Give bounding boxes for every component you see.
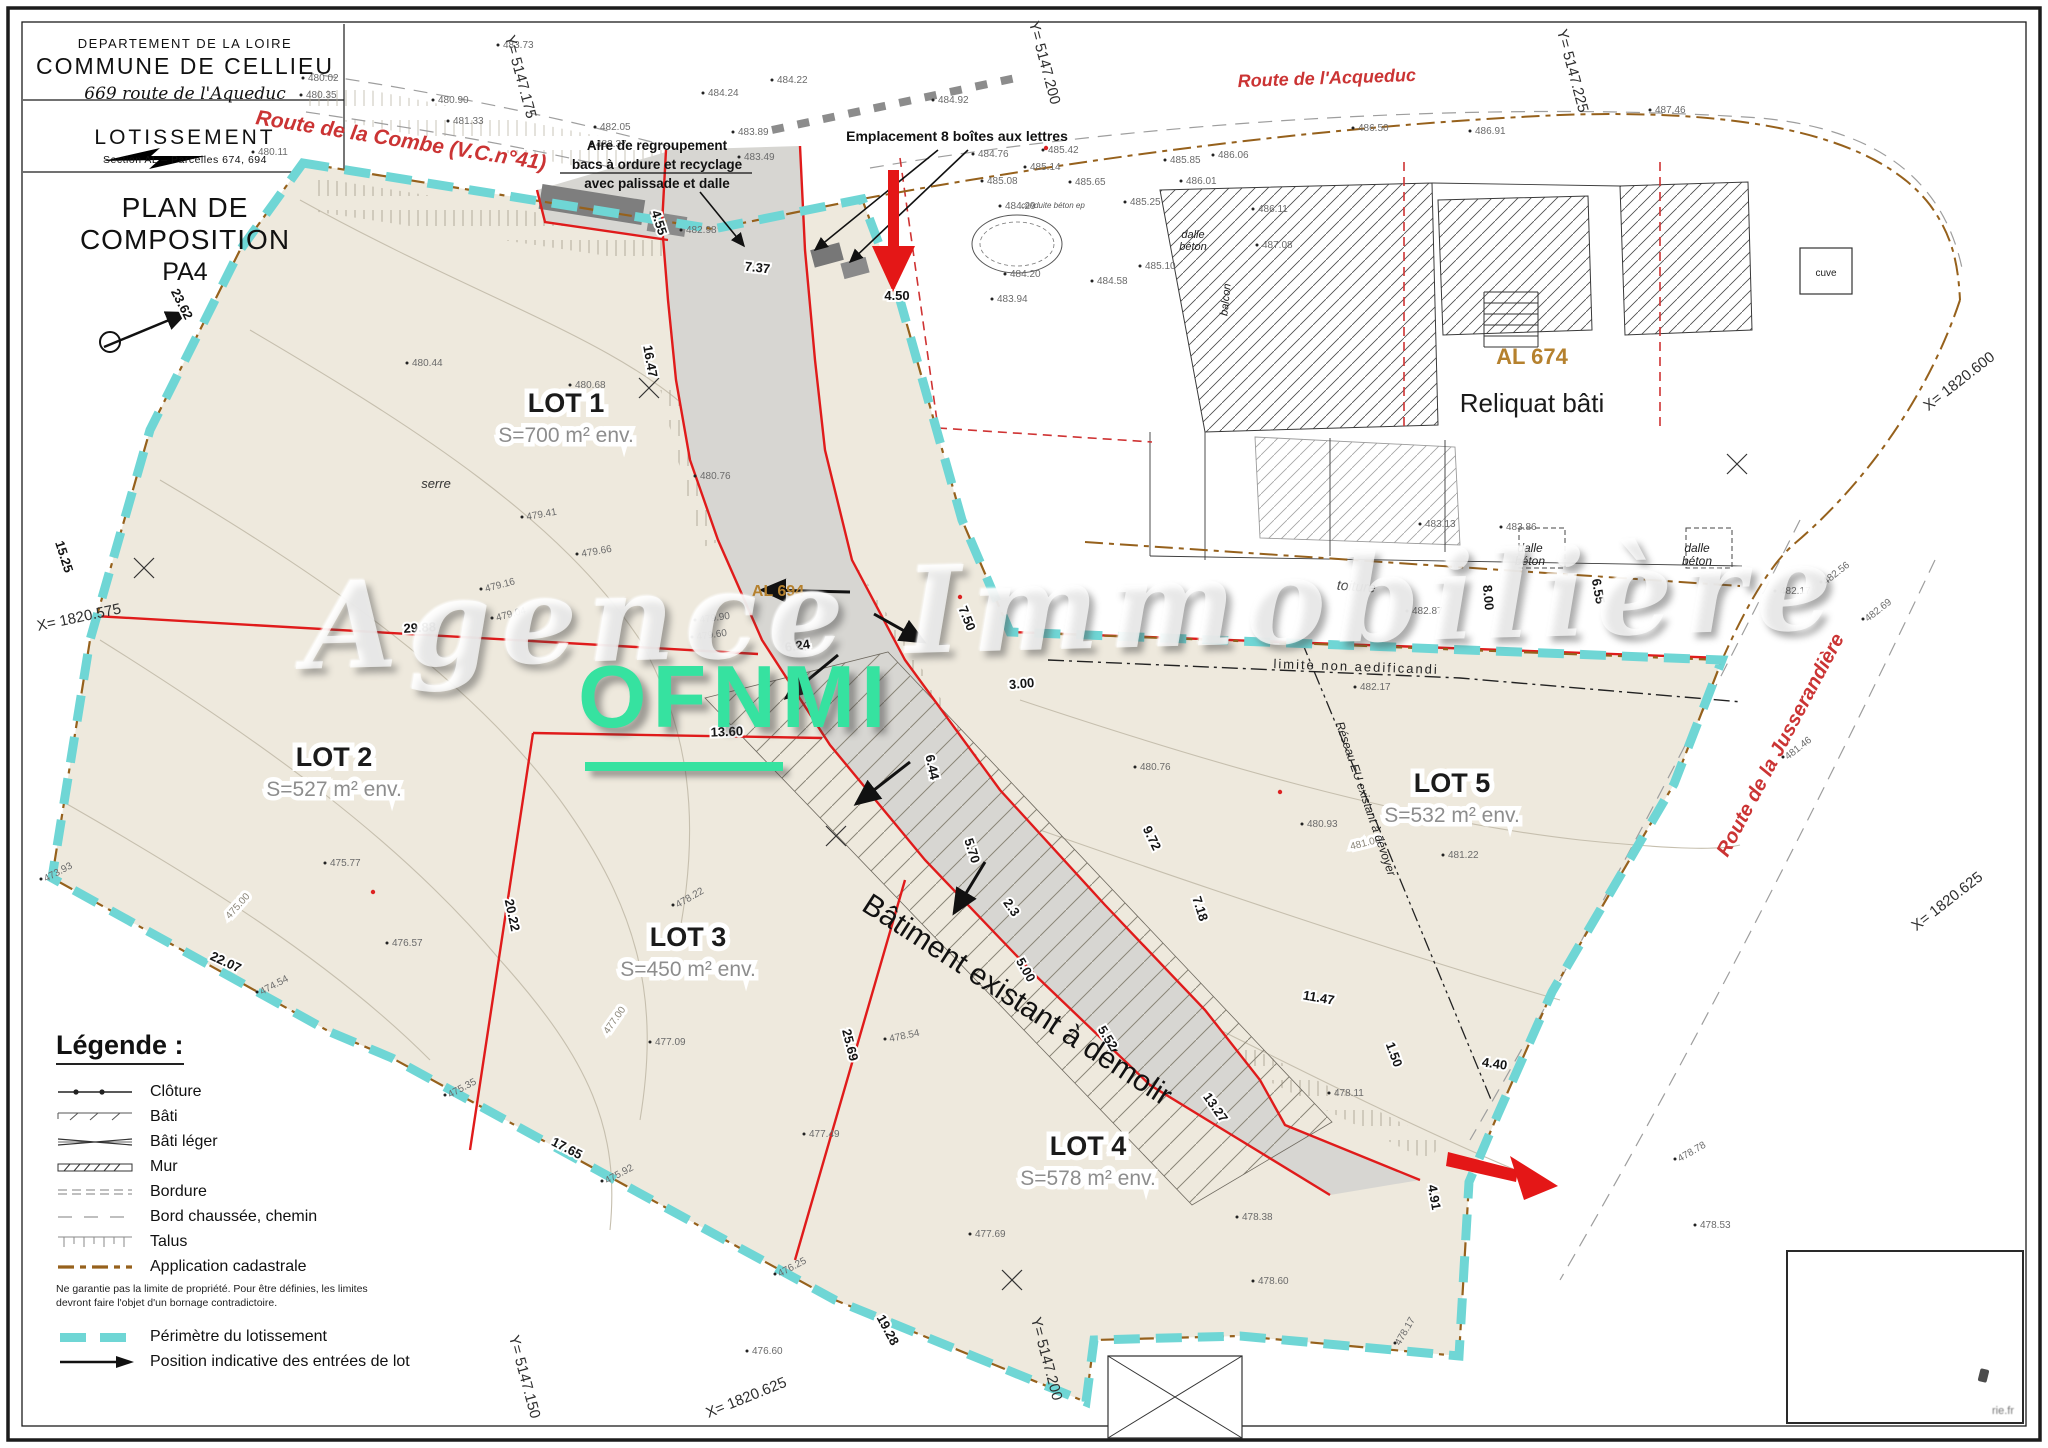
spot-elevation: 477.09	[655, 1037, 686, 1048]
legend-item-entrees: Position indicative des entrées de lot	[56, 1349, 426, 1374]
spot-elevation-dot	[1694, 1224, 1697, 1227]
spot-elevation-dot	[694, 619, 697, 622]
dalle-beton-label: béton	[1515, 554, 1545, 568]
spot-elevation: 486.91	[1475, 126, 1506, 137]
spot-elevation-dot	[691, 636, 694, 639]
spot-elevation: 480.93	[1307, 819, 1338, 830]
spot-elevation-dot	[1500, 526, 1503, 529]
spot-elevation-dot	[672, 904, 675, 907]
legend-item-label: Bord chaussée, chemin	[150, 1208, 317, 1226]
spot-elevation-dot	[732, 131, 735, 134]
spot-elevation: 483.86	[1506, 522, 1537, 533]
spot-elevation: 485.25	[1130, 197, 1161, 208]
dalle-beton-label: dalle	[1181, 229, 1204, 241]
toiture-label: toiture	[1336, 577, 1376, 596]
legend-symbol-entrees	[56, 1354, 134, 1370]
spot-elevation: 482.69	[1863, 597, 1894, 625]
spot-elevation-dot	[1236, 1216, 1239, 1219]
spot-elevation: 487.08	[1262, 240, 1293, 251]
spot-elevation: 480.76	[1140, 762, 1171, 773]
spot-elevation-dot	[1256, 244, 1259, 247]
spot-elevation: 477.69	[975, 1229, 1006, 1240]
spot-elevation: 476.57	[392, 938, 423, 949]
serre-label: serre	[421, 476, 451, 491]
spot-elevation-dot	[1406, 610, 1409, 613]
callout-aire-line1: Aire de regroupement	[587, 138, 728, 153]
spot-elevation-dot	[702, 92, 705, 95]
lot-name: LOT 4	[1050, 1131, 1127, 1161]
spot-elevation: 485.10	[1145, 261, 1176, 272]
dimension-label: 15.25	[52, 539, 76, 575]
legend-item-mur: Mur	[56, 1154, 426, 1179]
spot-elevation-dot	[1164, 159, 1167, 162]
legend-item-label: Bordure	[150, 1183, 207, 1201]
spot-elevation: 484.58	[1097, 276, 1128, 287]
spot-elevation-dot	[884, 1038, 887, 1041]
lot-name: LOT 1	[528, 388, 605, 418]
spot-elevation-dot	[1124, 201, 1127, 204]
legend-item-label: Bâti	[150, 1108, 178, 1126]
spot-elevation: 477.49	[809, 1129, 840, 1140]
dimension-label: 6.55	[1589, 577, 1608, 605]
lot-area: S=532 m² env.	[1384, 804, 1520, 827]
spot-elevation: 485.42	[1048, 145, 1079, 156]
legend-title: Légende :	[56, 1030, 184, 1065]
spot-elevation-dot	[576, 553, 579, 556]
spot-elevation-dot	[1354, 686, 1357, 689]
dimension-label: 7.37	[744, 259, 771, 277]
spot-elevation: 482.56	[1821, 560, 1852, 588]
callout-aire-line2: bacs à ordure et recyclage	[572, 157, 743, 172]
notch-building	[1108, 1356, 1242, 1438]
spot-elevation-dot	[480, 588, 483, 591]
parcel-code-al674: AL 674	[1496, 344, 1569, 369]
spot-elevation-dot	[1774, 590, 1777, 593]
legend-symbol-talus	[56, 1234, 134, 1250]
spot-elevation: 484.76	[978, 149, 1009, 160]
doc-type-label: LOTISSEMENT	[28, 126, 342, 150]
spot-elevation: 480.44	[412, 358, 443, 369]
lot-name: LOT 5	[1414, 768, 1491, 798]
plan-title: PLAN DE COMPOSITION	[28, 192, 342, 256]
road-label-jusserandiere: Route de la Jusserandière	[1713, 630, 1849, 860]
department-label: DEPARTEMENT DE LA LOIRE	[28, 36, 342, 51]
spot-elevation-dot	[444, 1094, 447, 1097]
spot-elevation: 484.20	[1010, 269, 1041, 280]
grid-coordinate: Y= 5147.150	[505, 1333, 544, 1420]
spot-elevation-dot	[774, 1273, 777, 1276]
legend-symbol-bord-chaussee	[56, 1209, 134, 1225]
section-label: Section AL – Parcelles 674, 694	[28, 154, 342, 166]
legend-item-label: Position indicative des entrées de lot	[150, 1353, 410, 1371]
spot-elevation: 485.65	[1075, 177, 1106, 188]
dimension-label: 3.00	[1008, 675, 1035, 692]
spot-elevation: 478.38	[1242, 1212, 1273, 1223]
legend-item-label: Application cadastrale	[150, 1258, 307, 1276]
spot-elevation-dot	[1212, 154, 1215, 157]
spot-elevation: 487.46	[1655, 105, 1686, 116]
spot-elevation-dot	[694, 475, 697, 478]
lot-area: S=450 m² env.	[620, 958, 756, 981]
dimension-label: 29.88	[403, 619, 436, 636]
legend-item-bordure: Bordure	[56, 1179, 426, 1204]
legend-item-perimetre: Périmètre du lotissement	[56, 1324, 426, 1349]
spot-elevation-dot	[1674, 1158, 1677, 1161]
north-arrow	[100, 313, 186, 352]
spot-elevation-dot	[386, 942, 389, 945]
legend-item-application-cadastrale: Application cadastrale	[56, 1254, 426, 1279]
dalle-beton-label: dalle	[1684, 541, 1710, 555]
spot-elevation: 485.08	[987, 176, 1018, 187]
legend-cadastral-note: Ne garantie pas la limite de propriété. …	[56, 1282, 408, 1310]
spot-elevation-dot	[1419, 523, 1422, 526]
cadastral-line	[1722, 300, 1960, 660]
spot-elevation-dot	[972, 153, 975, 156]
legend-items: ClôtureBâtiBâti légerMurBordureBord chau…	[56, 1079, 426, 1279]
legend-item-cloture: Clôture	[56, 1079, 426, 1104]
spot-elevation: 483.89	[738, 127, 769, 138]
spot-elevation: 481.33	[453, 116, 484, 127]
spot-elevation-dot	[1134, 766, 1137, 769]
title-block: DEPARTEMENT DE LA LOIRE COMMUNE DE CELLI…	[28, 26, 342, 287]
spot-elevation-dot	[256, 991, 259, 994]
spot-elevation-dot	[1469, 130, 1472, 133]
spot-elevation-dot	[680, 229, 683, 232]
spot-elevation: 482.05	[600, 122, 631, 133]
spot-elevation-dot	[1301, 823, 1304, 826]
stamp-box: rie.fr	[1786, 1250, 2024, 1424]
spot-elevation: 484.22	[777, 75, 808, 86]
spot-elevation-dot	[1252, 1280, 1255, 1283]
plan-page: 480.02480.35480.11483.73484.22484.24483.…	[0, 0, 2048, 1448]
spot-elevation: 482.17	[1780, 586, 1811, 597]
road-label-acqueduc: Route de l'Acqueduc	[1237, 65, 1416, 91]
spot-elevation-dot	[999, 205, 1002, 208]
legend: Légende : ClôtureBâtiBâti légerMurBordur…	[56, 1030, 426, 1374]
lot-area: S=527 m² env.	[266, 778, 402, 801]
spot-elevation: 483.49	[744, 152, 775, 163]
spot-elevation-dot	[1649, 109, 1652, 112]
parcel-code-al694: AL 694	[752, 583, 804, 600]
grid-coordinate: Y= 5147.175	[501, 33, 540, 120]
lot-area: S=578 m² env.	[1020, 1167, 1156, 1190]
spot-elevation-dot	[1352, 127, 1355, 130]
spot-elevation-dot	[491, 617, 494, 620]
grid-coordinate: X= 1820.625	[703, 1374, 789, 1422]
legend-symbol-bordure	[56, 1184, 134, 1200]
stamp-text: rie.fr	[1992, 1405, 2014, 1417]
spot-elevation-dot	[771, 79, 774, 82]
spot-elevation: 482.87	[1412, 606, 1443, 617]
spot-elevation: 478.11	[1334, 1088, 1364, 1099]
spot-elevation-dot	[649, 1041, 652, 1044]
spot-elevation-dot	[521, 516, 524, 519]
reliquat-bati-label: Reliquat bâti	[1460, 388, 1605, 418]
legend-item-label: Bâti léger	[150, 1133, 218, 1151]
grid-coordinate: Y= 5147.200	[1025, 19, 1064, 106]
grid-coordinate: Y= 5147.225	[1553, 27, 1592, 114]
legend-symbol-cloture	[56, 1084, 134, 1100]
spot-elevation-dot	[803, 1133, 806, 1136]
spot-elevation: 482.17	[1360, 682, 1391, 693]
spot-elevation-dot	[1004, 273, 1007, 276]
legend-item-label: Clôture	[150, 1083, 202, 1101]
spot-elevation: 483.94	[997, 294, 1028, 305]
spot-elevation-dot	[1069, 181, 1072, 184]
callout-mailboxes: Emplacement 8 boîtes aux lettres	[846, 128, 1068, 144]
spot-elevation: 482.98	[686, 225, 717, 236]
spot-elevation: 480.76	[700, 471, 731, 482]
cuve-label: cuve	[1815, 268, 1837, 279]
lot-name: LOT 3	[650, 922, 727, 952]
spot-elevation-dot	[497, 44, 500, 47]
spot-elevation: 485.85	[1170, 155, 1201, 166]
spot-elevation: 475.77	[330, 858, 361, 869]
spot-elevation: 486.06	[1218, 150, 1249, 161]
spot-elevation-dot	[1328, 1092, 1331, 1095]
spot-elevation: 486.01	[1186, 176, 1217, 187]
address-label: 669 route de l'Aqueduc	[28, 84, 342, 104]
spot-elevation-dot	[594, 126, 597, 129]
pedestrian-dash-path	[772, 76, 1025, 130]
spot-elevation-dot	[406, 362, 409, 365]
spot-elevation: 484.92	[938, 95, 969, 106]
spot-elevation: 476.60	[752, 1346, 783, 1357]
spot-elevation: 483.13	[1425, 519, 1456, 530]
spot-elevation-dot	[1024, 166, 1027, 169]
spot-elevation: 478.53	[1700, 1220, 1731, 1231]
legend-symbol-application-cadastrale	[56, 1259, 134, 1275]
spot-elevation: 478.60	[1258, 1276, 1289, 1287]
legend-note-line2: devront faire l'objet d'un bornage contr…	[56, 1297, 277, 1309]
pool-outline	[972, 215, 1062, 273]
callout-aire-line3: avec palissade et dalle	[584, 176, 730, 191]
spot-elevation: 480.90	[438, 95, 469, 106]
spot-elevation-dot	[1042, 149, 1045, 152]
dalle-beton-label: béton	[1179, 241, 1207, 253]
legend-symbol-perimetre	[56, 1329, 134, 1345]
stamp-smudge	[1978, 1368, 1990, 1383]
dimension-label: 8.00	[1480, 584, 1497, 611]
legend-item-bati-leger: Bâti léger	[56, 1129, 426, 1154]
spot-elevation: 485.14	[1030, 162, 1061, 173]
grid-coordinate: X= 1820.600	[1920, 348, 1998, 414]
spot-elevation-dot	[40, 878, 43, 881]
dalle-beton-label: dalle	[1517, 541, 1543, 555]
commune-label: COMMUNE DE CELLIEU	[28, 53, 342, 80]
spot-elevation-dot	[601, 1180, 604, 1183]
legend-item-label: Périmètre du lotissement	[150, 1328, 327, 1346]
plan-ref: PA4	[28, 258, 342, 287]
spot-elevation-dot	[1091, 280, 1094, 283]
spot-elevation-dot	[1180, 180, 1183, 183]
legend-item-talus: Talus	[56, 1229, 426, 1254]
grid-coordinate: X= 1820.625	[1908, 868, 1986, 934]
dimension-label: 4.50	[884, 288, 909, 303]
dalle-beton-label: béton	[1682, 554, 1712, 568]
spot-elevation-dot	[969, 1233, 972, 1236]
dimension-label: 23.62	[168, 286, 196, 322]
spot-elevation-dot	[324, 862, 327, 865]
spot-elevation-dot	[932, 99, 935, 102]
spot-elevation-dot	[1442, 854, 1445, 857]
spot-elevation-dot	[1139, 265, 1142, 268]
legend-symbol-mur	[56, 1159, 134, 1175]
conduite-beton-label: conduite béton ep	[1021, 201, 1085, 210]
spot-elevation-dot	[447, 120, 450, 123]
spot-elevation-dot	[432, 99, 435, 102]
spot-elevation-dot	[746, 1350, 749, 1353]
legend-item-bord-chaussee: Bord chaussée, chemin	[56, 1204, 426, 1229]
lot-name: LOT 2	[296, 742, 373, 772]
legend-item-label: Talus	[150, 1233, 187, 1251]
spot-elevation-dot	[981, 180, 984, 183]
lot-area: S=700 m² env.	[498, 424, 634, 447]
spot-elevation-dot	[991, 298, 994, 301]
legend-symbol-bati	[56, 1109, 134, 1125]
legend-symbol-bati-leger	[56, 1134, 134, 1150]
spot-elevation-dot	[1252, 208, 1255, 211]
spot-elevation: 486.50	[1358, 123, 1389, 134]
legend-item-label: Mur	[150, 1158, 178, 1176]
spot-elevation: 486.11	[1258, 204, 1288, 215]
dimension-label: 13.60	[710, 723, 743, 739]
spot-elevation-dot	[569, 384, 572, 387]
legend-item-bati: Bâti	[56, 1104, 426, 1129]
spot-elevation: 484.24	[708, 88, 739, 99]
spot-elevation: 481.22	[1448, 850, 1479, 861]
legend-note-line1: Ne garantie pas la limite de propriété. …	[56, 1283, 368, 1295]
spot-elevation: 478.78	[1676, 1140, 1708, 1165]
